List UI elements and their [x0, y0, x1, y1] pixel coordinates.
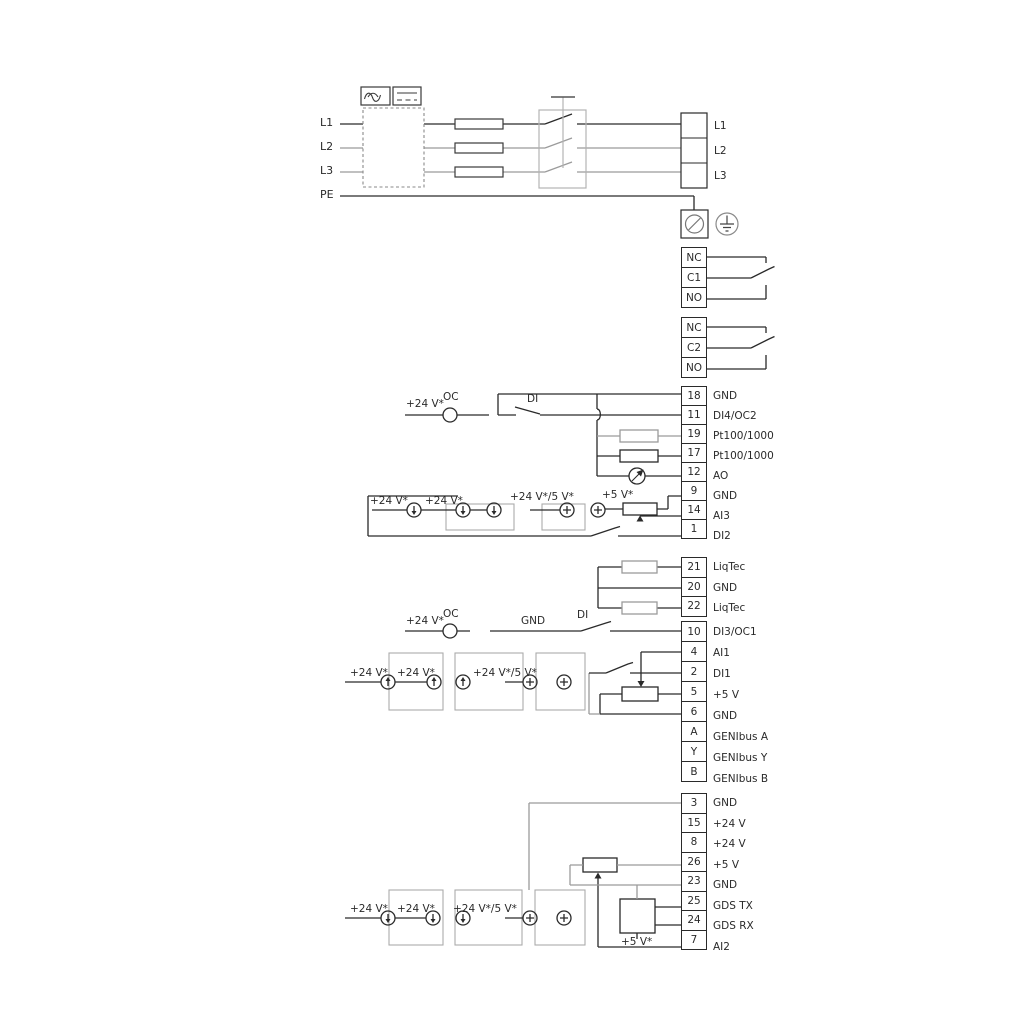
resistor-icon: [620, 430, 658, 442]
terminal-label: GENIbus B: [713, 768, 768, 789]
terminal-label: GND: [713, 793, 754, 814]
wiper-arrow: [638, 681, 645, 687]
resistor-icon: [622, 561, 657, 573]
plus24-label: +24 V*: [397, 668, 435, 679]
terminal-label: GND: [713, 578, 745, 599]
terminal-label: GND: [713, 386, 774, 406]
terminal-number: 17: [681, 443, 707, 463]
l3-wire: [340, 162, 681, 172]
meter-icon: [629, 468, 645, 484]
terminal-number: 18: [681, 386, 707, 406]
terminal-number: 2: [681, 661, 707, 682]
mains-output-label: L2: [714, 138, 727, 163]
oc-circle-icon: [443, 408, 457, 422]
terminal-number: Y: [681, 741, 707, 762]
l1-wire: [340, 114, 681, 124]
terminal-number: 14: [681, 500, 707, 520]
terminal-number: 25: [681, 891, 707, 912]
plus24or5-label: +24 V*/5 V*: [510, 492, 574, 503]
terminal-number: 6: [681, 701, 707, 722]
di-label: DI: [577, 610, 588, 621]
option-frame: [542, 504, 585, 530]
relay2-terminal-cell: C2: [681, 337, 707, 358]
relay1-terminal-block: NCC1NO: [681, 247, 707, 308]
plus24-label: +24 V*: [350, 668, 388, 679]
terminal-number: 24: [681, 910, 707, 931]
plus24-label: +24 V*: [425, 496, 463, 507]
terminal-number: 22: [681, 596, 707, 617]
wiper-arrow: [595, 873, 602, 879]
terminal-number: 9: [681, 481, 707, 501]
potentiometer-icon: [622, 687, 658, 701]
oc-label: OC: [443, 609, 459, 620]
terminal-label: DI1: [713, 663, 768, 684]
wiring-lines: [0, 0, 1024, 1024]
plus5-label: +5 V*: [621, 937, 652, 948]
relay2-terminal-cell: NO: [681, 357, 707, 378]
liqtec-wires: [598, 561, 681, 614]
terminal-number: 5: [681, 681, 707, 702]
terminal-label: LiqTec: [713, 598, 745, 619]
io2-terminal-labels: DI3/OC1AI1DI1+5 VGNDGENIbus AGENIbus YGE…: [713, 621, 768, 789]
io3-terminal-labels: GND+24 V+24 V+5 VGNDGDS TXGDS RXAI2: [713, 793, 754, 957]
emc-filter-box: [363, 108, 424, 187]
terminal-label: AO: [713, 466, 774, 486]
plus24-label: +24 V*: [406, 616, 444, 627]
terminal-label: GND: [713, 875, 754, 896]
plus24or5-label: +24 V*/5 V*: [473, 668, 537, 679]
relay2-terminal-block: NCC2NO: [681, 317, 707, 378]
terminal-label: GND: [713, 705, 768, 726]
liqtec-terminal-labels: LiqTecGNDLiqTec: [713, 557, 745, 619]
mains-output-labels: L1L2L3: [714, 113, 727, 188]
terminal-label: DI3/OC1: [713, 621, 768, 642]
terminal-number: 23: [681, 871, 707, 892]
relay1-terminal-cell: NO: [681, 287, 707, 308]
plus24-label: +24 V*: [350, 904, 388, 915]
terminal-label: DI4/OC2: [713, 406, 774, 426]
potentiometer-icon: [583, 858, 617, 872]
io3-wires: [345, 803, 681, 947]
io1-wires: [405, 394, 681, 484]
relay2-contact-icon: [707, 327, 775, 369]
power-label-l2-left: L2: [320, 141, 333, 153]
power-section: [340, 87, 738, 238]
terminal-label: GENIbus Y: [713, 747, 768, 768]
plus5-label: +5 V*: [602, 490, 633, 501]
terminal-number: 26: [681, 852, 707, 873]
liqtec-terminal-block: 212022: [681, 557, 707, 617]
relay1-terminal-cell: NC: [681, 247, 707, 268]
voltage-sensor-icon: [560, 503, 605, 517]
terminal-number: 8: [681, 832, 707, 853]
terminal-number: 15: [681, 813, 707, 834]
oc-circle-icon: [443, 624, 457, 638]
gds-sensor-box: [620, 899, 655, 933]
potentiometer-icon: [623, 503, 657, 515]
terminal-number: 11: [681, 405, 707, 425]
terminal-label: GDS RX: [713, 916, 754, 937]
l2-wire: [340, 138, 681, 148]
io3-terminal-block: 3158262325247: [681, 793, 707, 950]
wiring-diagram: L1 L2 L3 PE L1L2L3 NCC1NO NCC2NO 1811191…: [0, 0, 1024, 1024]
terminal-label: AI3: [713, 506, 774, 526]
fuse-icon: [455, 167, 503, 177]
terminal-label: Pt100/1000: [713, 446, 774, 466]
resistor-icon: [620, 450, 658, 462]
terminal-label: LiqTec: [713, 557, 745, 578]
terminal-label: GND: [713, 486, 774, 506]
power-label-l3-left: L3: [320, 165, 333, 177]
terminal-number: 12: [681, 462, 707, 482]
terminal-number: B: [681, 761, 707, 782]
pe-wire: [340, 196, 694, 210]
plus24-label: +24 V*: [406, 399, 444, 410]
terminal-number: 20: [681, 577, 707, 598]
gnd-label: GND: [521, 616, 545, 627]
io1-terminal-block: 18111917129141: [681, 386, 707, 539]
terminal-number: 10: [681, 621, 707, 642]
terminal-label: DI2: [713, 526, 774, 546]
terminal-label: +24 V: [713, 834, 754, 855]
terminal-number: 4: [681, 641, 707, 662]
mains-output-label: L3: [714, 163, 727, 188]
terminal-label: AI2: [713, 937, 754, 958]
earth-icon: [716, 213, 738, 235]
fuse-icon: [455, 119, 503, 129]
plus24-label: +24 V*: [397, 904, 435, 915]
mains-output-label: L1: [714, 113, 727, 138]
resistor-icon: [622, 602, 657, 614]
terminal-number: 7: [681, 930, 707, 951]
mains-terminal-block: [681, 113, 707, 188]
terminal-number: 19: [681, 424, 707, 444]
terminal-label: GENIbus A: [713, 726, 768, 747]
dc-icon: [393, 87, 421, 105]
fuse-icon: [455, 143, 503, 153]
terminal-number: 21: [681, 557, 707, 578]
relay2-terminal-cell: NC: [681, 317, 707, 338]
terminal-label: GDS TX: [713, 896, 754, 917]
oc-label: OC: [443, 392, 459, 403]
terminal-number: A: [681, 721, 707, 742]
terminal-number: 1: [681, 519, 707, 539]
terminal-label: +24 V: [713, 814, 754, 835]
io2-terminal-block: 104256AYB: [681, 621, 707, 782]
voltage-sensor-icon: [523, 911, 571, 925]
plus24or5-label: +24 V*/5 V*: [453, 904, 517, 915]
terminal-label: +5 V: [713, 855, 754, 876]
di-label: DI: [527, 394, 538, 405]
relay1-terminal-cell: C1: [681, 267, 707, 288]
plus24-label: +24 V*: [370, 496, 408, 507]
io1-terminal-labels: GNDDI4/OC2Pt100/1000Pt100/1000AOGNDAI3DI…: [713, 386, 774, 546]
power-label-pe-left: PE: [320, 189, 334, 201]
terminal-label: AI1: [713, 642, 768, 663]
terminal-number: 3: [681, 793, 707, 814]
terminal-label: Pt100/1000: [713, 426, 774, 446]
terminal-label: +5 V: [713, 684, 768, 705]
relay1-contact-icon: [707, 257, 775, 299]
power-label-l1-left: L1: [320, 117, 333, 129]
